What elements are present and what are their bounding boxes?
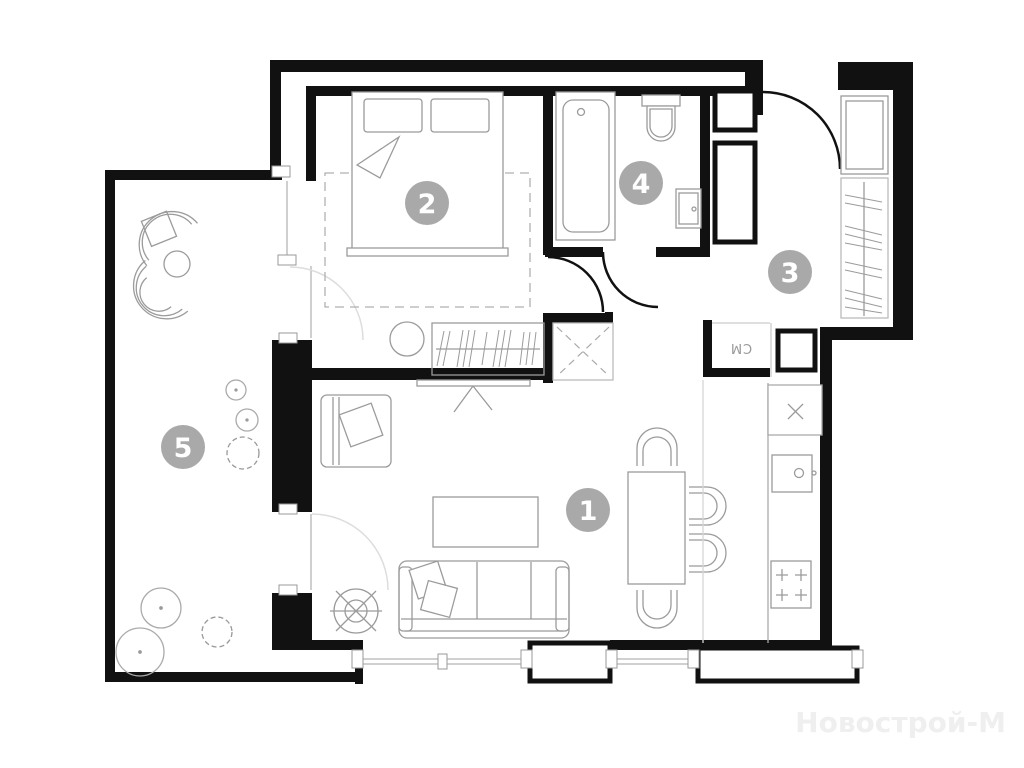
- frame-mark: [688, 650, 699, 668]
- watermark: Новострой-М: [795, 706, 1006, 739]
- bed-pillow: [364, 99, 422, 132]
- wall-segment: [545, 247, 603, 257]
- wall-segment: [893, 88, 913, 340]
- frame-mark: [279, 504, 297, 514]
- bed-pillow: [431, 99, 489, 132]
- terrace-chair: [120, 261, 188, 333]
- badge-number: 2: [418, 189, 437, 220]
- window-bay: [530, 643, 610, 681]
- wall-segment: [820, 327, 913, 340]
- badge-number: 4: [632, 169, 651, 200]
- wall-segment: [838, 62, 913, 90]
- wall-segment: [286, 640, 363, 650]
- wall-segment: [105, 672, 363, 682]
- tree-dot: [139, 651, 141, 653]
- kitchen-vent-cell: [768, 385, 822, 435]
- kitchen-sink-tap: [812, 471, 816, 475]
- kitchen-fixtures: [703, 380, 822, 643]
- kitchen-sink: [772, 455, 812, 492]
- wall-segment: [270, 60, 763, 72]
- pouf: [390, 322, 424, 356]
- bathroom-sink: [676, 189, 701, 228]
- terrace-bedroom-door-arc: [290, 267, 363, 340]
- floorplan-canvas: СМ: [0, 0, 1024, 768]
- wall-segment: [105, 170, 282, 180]
- coffee-table: [433, 497, 538, 547]
- stove-burners: [776, 569, 807, 601]
- wall-segment: [543, 86, 553, 255]
- hall-cabinet: [841, 96, 888, 174]
- sofa-armrest: [399, 567, 412, 631]
- terrace-table: [164, 251, 190, 277]
- room-badge-4: 4: [619, 161, 663, 205]
- frame-mark: [852, 650, 863, 668]
- frame-mark: [279, 585, 297, 595]
- potted-plant-cross: [330, 591, 382, 631]
- bedroom-furniture: [325, 92, 544, 375]
- room-badge-2: 2: [405, 181, 449, 225]
- plant-dot: [235, 389, 237, 391]
- room-badge-3: 3: [768, 250, 812, 294]
- vent-shaft: [553, 323, 613, 380]
- badge-number: 5: [174, 433, 193, 464]
- bathroom-door-arc: [603, 252, 658, 307]
- washing-machine-label: СМ: [730, 340, 752, 355]
- wall-segment: [543, 313, 613, 323]
- toilet-tank: [642, 95, 680, 106]
- wall-segment: [610, 640, 695, 650]
- bush: [202, 617, 232, 647]
- room-badge-5: 5: [161, 425, 205, 469]
- badge-number: 1: [579, 496, 598, 527]
- frame-mark: [279, 333, 297, 343]
- frame-mark: [352, 650, 363, 668]
- wall-segment: [272, 340, 312, 512]
- bathtub: [556, 92, 615, 240]
- entry-door-arc: [763, 92, 840, 169]
- shaft-box: [715, 91, 755, 130]
- frame-mark: [278, 255, 296, 265]
- bush: [227, 437, 259, 469]
- wall-segment: [656, 247, 710, 257]
- shaft-box: [715, 143, 755, 242]
- bed-footboard: [347, 248, 508, 256]
- plant-dot: [246, 419, 248, 421]
- dining-table: [628, 472, 685, 584]
- toilet-bowl: [647, 106, 675, 141]
- armchair-pillow: [339, 403, 383, 447]
- balcony-door-arc: [312, 514, 388, 590]
- frame-mark: [606, 650, 617, 668]
- wall-segment: [820, 327, 832, 648]
- wall-segment: [703, 368, 770, 377]
- kitchen-sink-drain: [795, 469, 804, 478]
- badge-number: 3: [781, 258, 800, 289]
- wall-segment: [105, 170, 115, 682]
- wall-segment: [270, 60, 281, 178]
- niche-side-box: [778, 331, 815, 370]
- tv-stand: [454, 386, 492, 412]
- window-bay: [698, 648, 857, 681]
- dining-chair: [643, 437, 671, 466]
- frame-mark: [521, 650, 532, 668]
- tree-dot: [160, 607, 162, 609]
- sofa-armrest: [556, 567, 569, 631]
- stove: [771, 561, 811, 608]
- room-badge-1: 1: [566, 488, 610, 532]
- living-room-furniture: [321, 380, 726, 638]
- wall-segment: [306, 368, 548, 380]
- dining-chair: [643, 590, 671, 619]
- frame-mark: [272, 166, 290, 177]
- tv: [417, 380, 530, 386]
- bedroom-door-arc: [548, 257, 603, 312]
- frame-mark: [438, 654, 447, 669]
- wall-segment: [306, 86, 316, 181]
- hall-cabinet-inner: [846, 101, 883, 169]
